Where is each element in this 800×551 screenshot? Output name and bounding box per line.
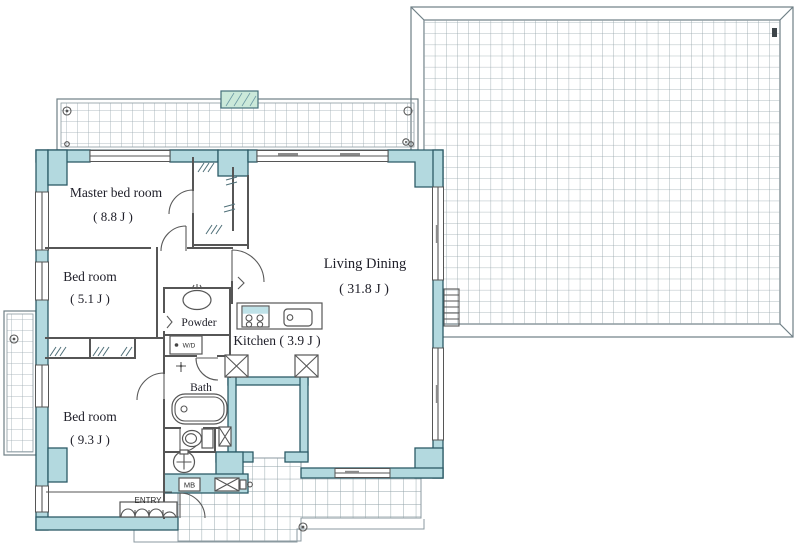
balcony-top-grid <box>61 103 414 147</box>
room-label-powder: Powder <box>181 317 216 329</box>
kitchen-counter <box>237 303 322 329</box>
room-label-bath: Bath <box>190 382 212 394</box>
kitchen-sink-icon <box>284 309 312 326</box>
pillar <box>48 448 67 482</box>
window-right-living-lower <box>433 348 444 440</box>
washer-dryer-label: W/D <box>183 343 196 350</box>
door-powder-marker <box>167 316 172 328</box>
pillar-x-box <box>225 355 248 377</box>
window-left-bedroom-large <box>36 365 49 407</box>
room-area-master-bedroom: ( 8.8 J ) <box>93 209 133 224</box>
door-bedroom-9-3 <box>137 373 164 400</box>
window-right-living-upper <box>433 187 444 280</box>
closet-hatch <box>50 347 66 356</box>
washer-dryer-box: W/D <box>170 336 202 354</box>
floor-plan-svg: W/D MB <box>0 0 800 551</box>
meter-box-mb: MB <box>179 478 200 491</box>
door-master-bedroom <box>169 190 193 214</box>
window-left-entry <box>36 486 49 512</box>
terrace-tile-grid <box>424 20 780 324</box>
room-area-living-dining: ( 31.8 J ) <box>339 282 389 297</box>
pillar-x-box <box>295 355 318 377</box>
window-top-living <box>257 151 388 162</box>
washbasin-icon <box>174 450 195 473</box>
window-top-master <box>90 151 170 162</box>
roof-terrace <box>411 7 793 337</box>
bathtub-icon <box>172 394 227 424</box>
room-area-bedroom-9-3: ( 9.3 J ) <box>70 432 110 447</box>
pillar-x-box <box>219 427 231 446</box>
room-label-bedroom-5-1: Bed room <box>63 269 117 284</box>
floorplan-page: W/D MB <box>0 0 800 551</box>
toilet-icon <box>183 429 214 448</box>
room-label-entry: ENTRY <box>135 496 163 505</box>
window-bottom-living <box>335 469 390 478</box>
door-bath <box>196 358 218 380</box>
balcony-left-grid <box>7 314 33 452</box>
room-label-living-dining: Living Dining <box>324 256 407 272</box>
door-living <box>232 250 264 289</box>
hanger-marks <box>224 177 237 212</box>
bath-tap-icon <box>176 362 186 372</box>
closet-hatch <box>93 347 109 356</box>
drain-dot <box>66 110 69 113</box>
corner-pillar-nw <box>48 150 67 185</box>
drain-dot <box>302 526 305 529</box>
room-label-bedroom-9-3: Bed room <box>63 409 117 424</box>
closet-hatch <box>121 347 132 356</box>
stove-icon <box>242 306 269 327</box>
vent-box-icon <box>221 91 258 108</box>
drain-dot <box>13 338 16 341</box>
closet-hatch <box>198 163 214 172</box>
balcony-left <box>4 311 36 455</box>
door-bedroom-5-1 <box>161 226 186 251</box>
room-label-kitchen: Kitchen ( 3.9 J ) <box>233 333 320 348</box>
closet-hatch <box>206 225 222 234</box>
window-left-master <box>36 192 49 250</box>
room-label-master-bedroom: Master bed room <box>70 185 163 200</box>
meter-box-label: MB <box>184 481 195 490</box>
terrace-corner-mark <box>772 28 777 37</box>
room-area-bedroom-5-1: ( 5.1 J ) <box>70 291 110 306</box>
window-left-bedroom <box>36 262 49 300</box>
